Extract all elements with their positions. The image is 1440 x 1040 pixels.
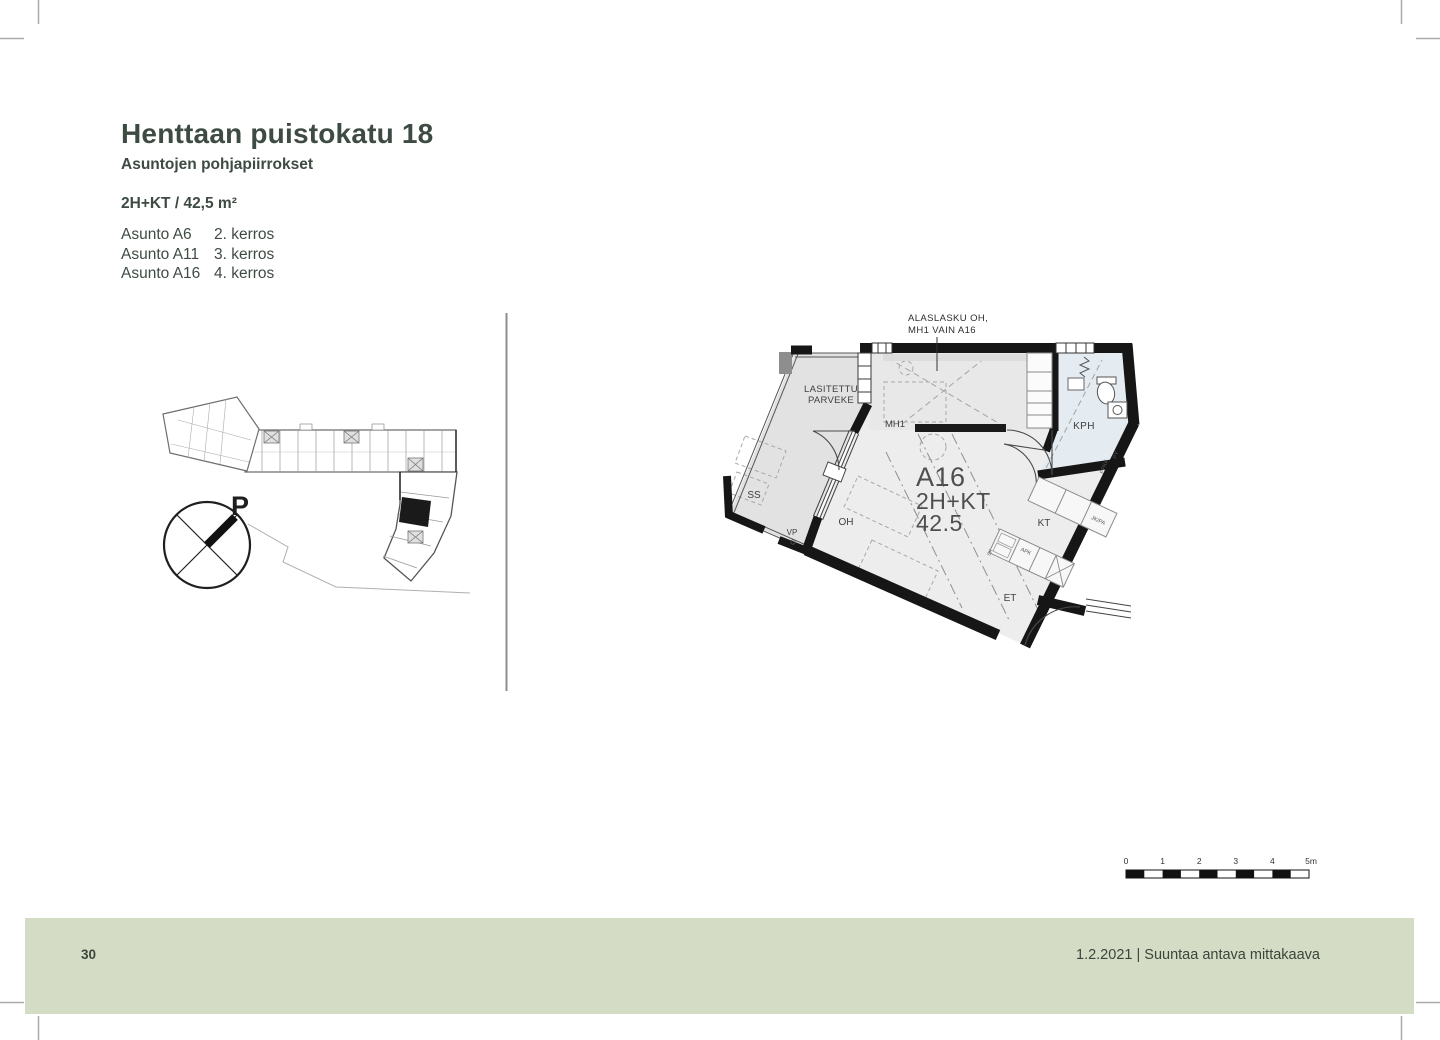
bay-notch bbox=[300, 424, 312, 430]
unit-area: 42.5 bbox=[916, 510, 963, 536]
highlighted-unit bbox=[399, 497, 431, 527]
crop-mark-top-left bbox=[0, 0, 39, 39]
wardrobe bbox=[1027, 403, 1052, 415]
label-balcony-1: LASITETTU bbox=[804, 384, 858, 395]
brochure-page: Henttaan puistokatu 18 Asuntojen pohjapi… bbox=[0, 0, 1440, 1040]
scale-label: 1 bbox=[1160, 856, 1165, 866]
site-plan: P bbox=[163, 397, 470, 593]
wardrobe bbox=[1027, 372, 1052, 391]
scale-label: 3 bbox=[1233, 856, 1238, 866]
label-et: ET bbox=[1004, 593, 1017, 604]
scale-bar-labels: 0 1 2 3 4 5m bbox=[1124, 856, 1317, 866]
scale-segment bbox=[1272, 870, 1290, 878]
washer-icon bbox=[1068, 378, 1084, 390]
scale-label: 5m bbox=[1305, 856, 1317, 866]
sink-icon bbox=[1108, 402, 1127, 418]
crop-mark-top-right bbox=[1402, 0, 1440, 39]
compass: P bbox=[164, 491, 250, 588]
window-top-right bbox=[1056, 343, 1094, 353]
wardrobe bbox=[1027, 353, 1052, 372]
wardrobes-mh1 bbox=[1027, 353, 1052, 428]
wardrobe bbox=[1027, 415, 1052, 428]
annotation-line2: MH1 VAIN A16 bbox=[908, 325, 976, 336]
floor-plan: JK/PA APK PY PPKK SK bbox=[727, 313, 1134, 646]
building-left-wing bbox=[163, 397, 259, 471]
wardrobe bbox=[1027, 391, 1052, 403]
bay-notch bbox=[372, 424, 384, 430]
label-kph: KPH bbox=[1073, 421, 1095, 432]
label-balcony-2: PARVEKE bbox=[808, 395, 854, 406]
scale-segment bbox=[1163, 870, 1181, 878]
scale-label: 2 bbox=[1197, 856, 1202, 866]
drawing-layer: P bbox=[0, 0, 1440, 1040]
scale-label: 0 bbox=[1124, 856, 1129, 866]
window-mh1-balcony bbox=[858, 353, 871, 403]
label-oh: OH bbox=[839, 517, 854, 528]
label-kt: KT bbox=[1038, 518, 1051, 529]
wall-right-upper bbox=[1127, 344, 1134, 425]
compass-north-label: P bbox=[231, 491, 249, 521]
scale-label: 4 bbox=[1270, 856, 1275, 866]
window-sill-band bbox=[883, 354, 1028, 361]
scale-segment bbox=[1199, 870, 1217, 878]
scale-segment bbox=[1126, 870, 1144, 878]
building-right-wing bbox=[384, 472, 457, 581]
annotation-line1: ALASLASKU OH, bbox=[908, 313, 988, 324]
scale-segment bbox=[1236, 870, 1254, 878]
scale-bar: 0 1 2 3 4 5m bbox=[1124, 856, 1317, 878]
label-vp: VP bbox=[787, 528, 798, 537]
label-mh1: MH1 bbox=[885, 419, 905, 430]
adjacent-balcony-block bbox=[779, 352, 792, 374]
page-number: 30 bbox=[81, 947, 96, 962]
wall-mh1-partition-bar bbox=[915, 424, 1006, 432]
label-ss: SS bbox=[747, 490, 761, 501]
footer-band: 30 1.2.2021 | Suuntaa antava mittakaava bbox=[25, 918, 1414, 1014]
footer-caption: 1.2.2021 | Suuntaa antava mittakaava bbox=[1076, 947, 1320, 963]
window-top-left bbox=[872, 343, 892, 353]
entry-walkway-lines bbox=[1086, 599, 1131, 618]
